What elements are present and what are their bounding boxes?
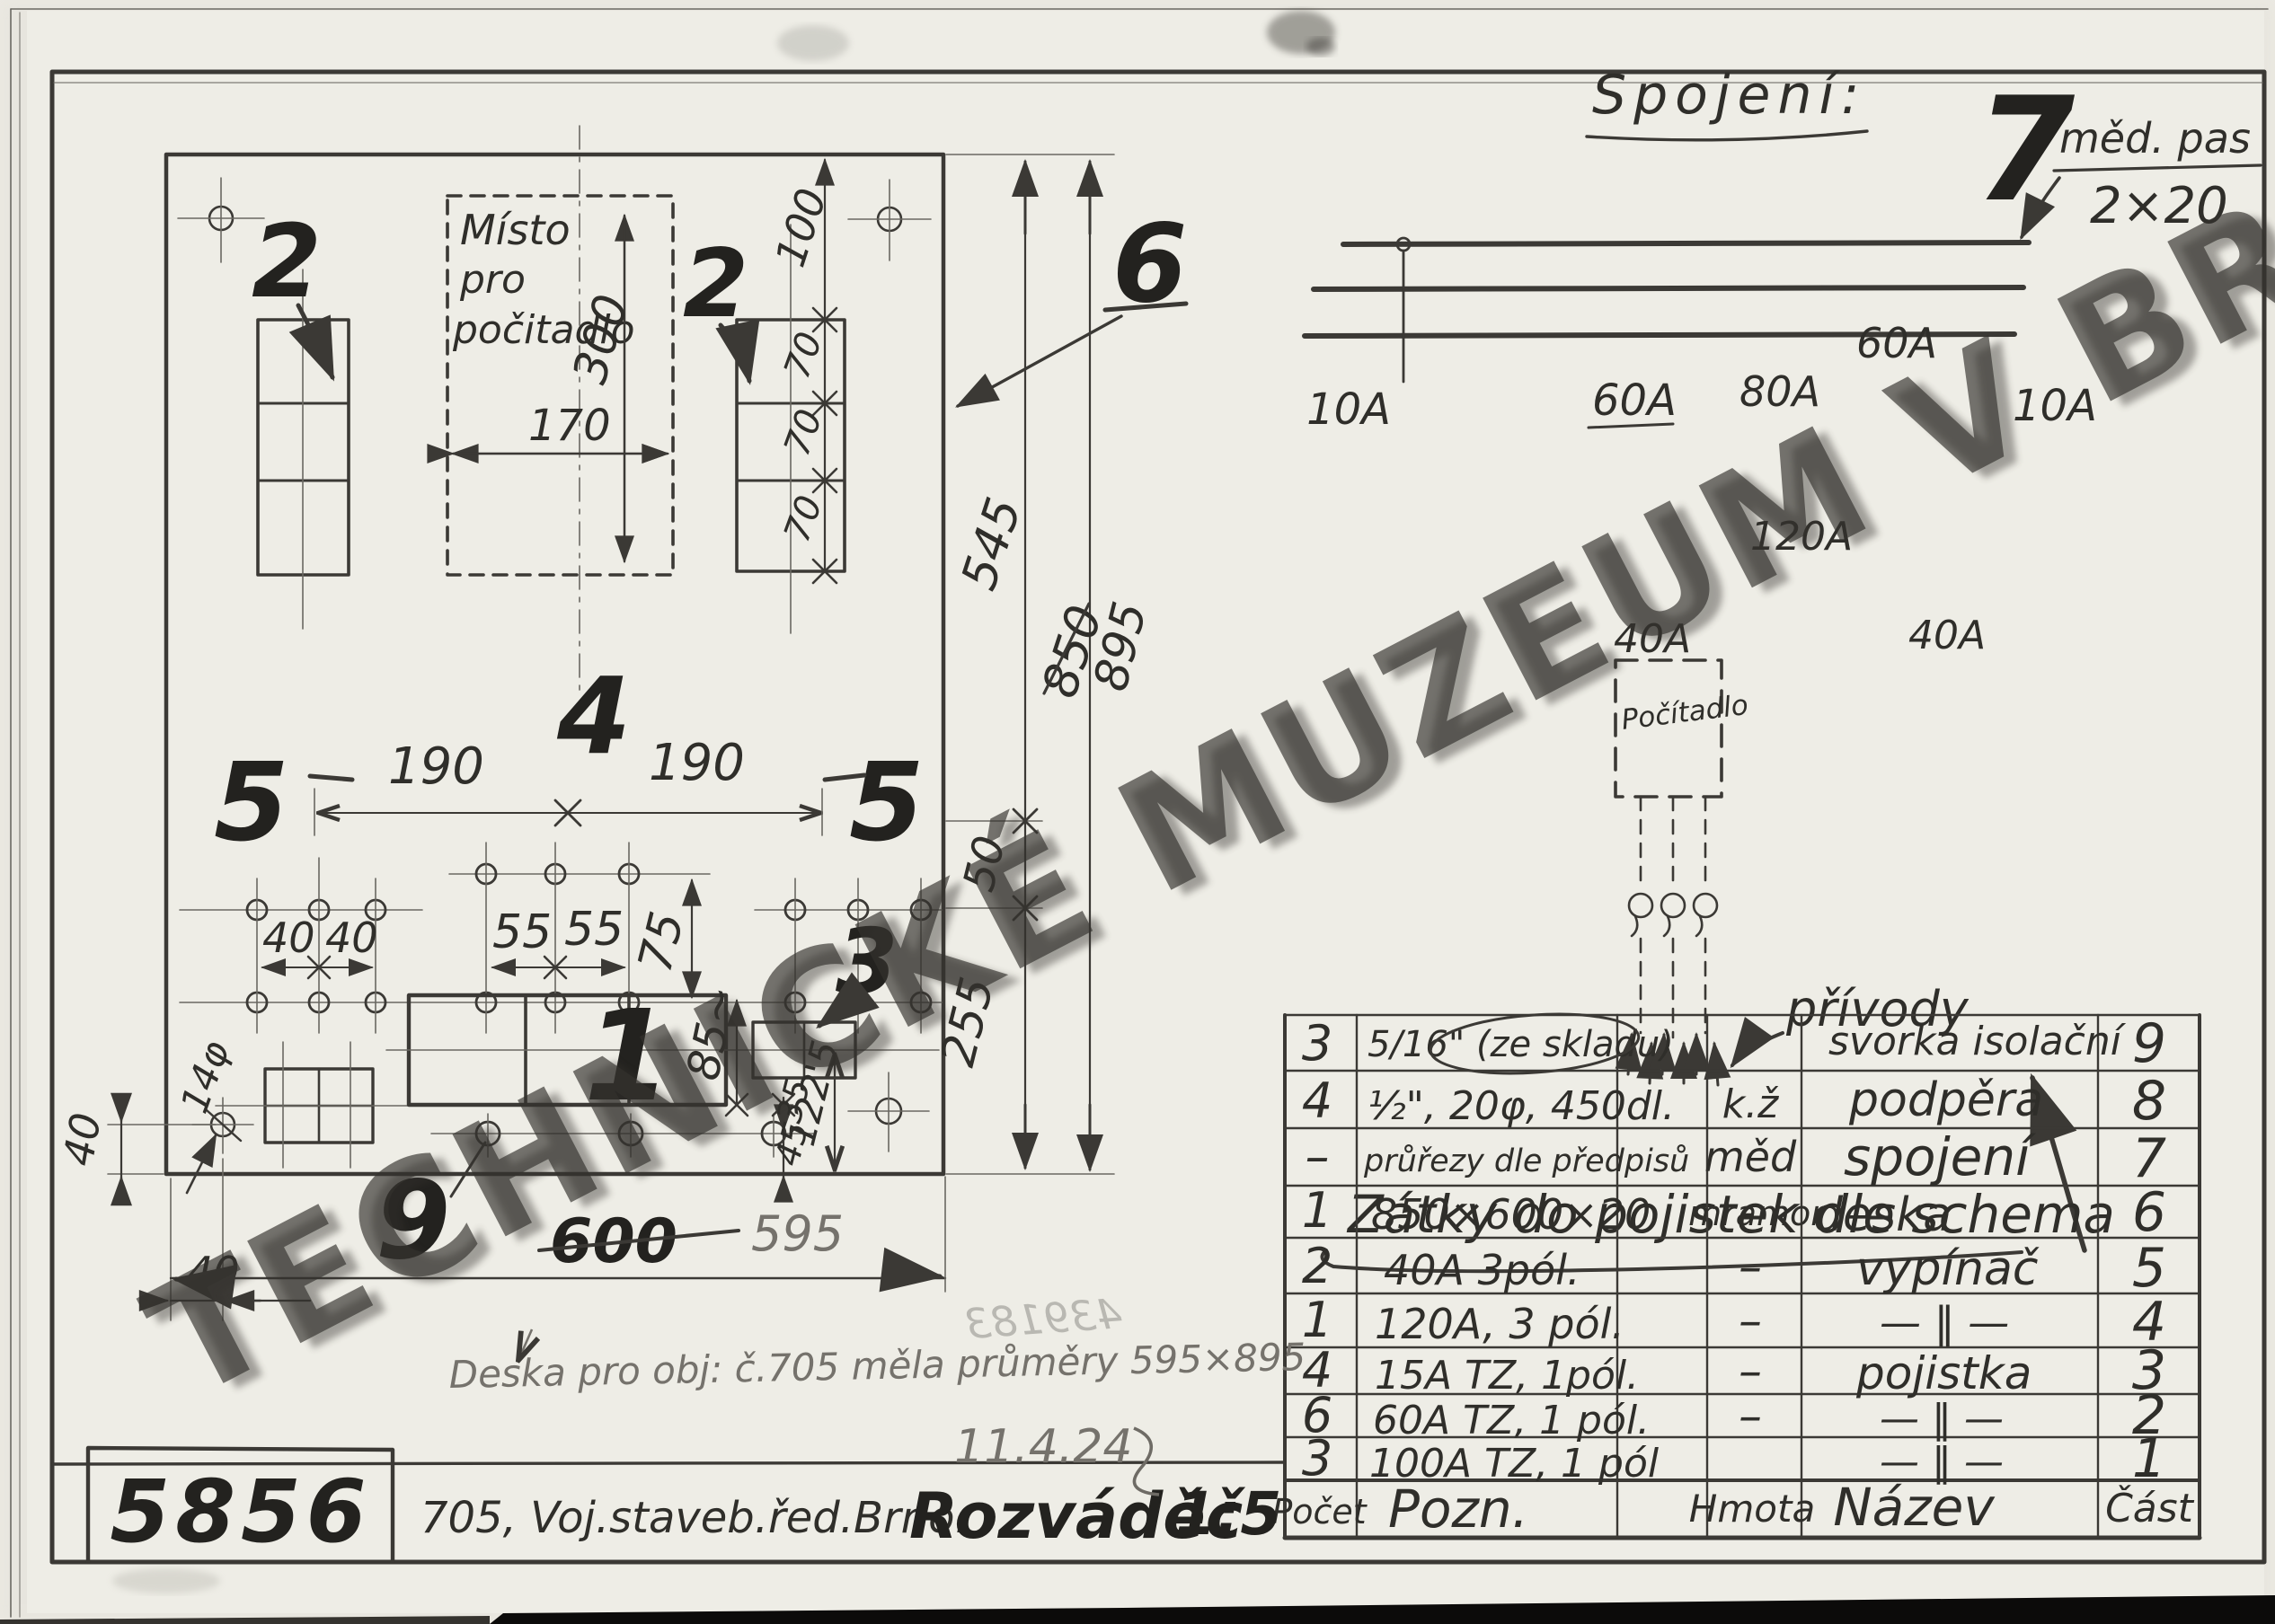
cell-nazev-4: vypínač: [1856, 1242, 2040, 1296]
cell-nazev-0: svorka isolační: [1828, 1019, 2127, 1064]
pos-label-5-right: 5: [849, 741, 925, 866]
cell-nazev-6: pojistka: [1855, 1347, 2032, 1399]
drawing-number: 5856: [110, 1461, 371, 1562]
header-pozn: Pozn.: [1388, 1478, 1528, 1540]
cell-hmota-5: –: [1739, 1294, 1762, 1348]
cell-cast-8: 1: [2132, 1427, 2166, 1490]
pencil-date: 11.4.24: [954, 1420, 1132, 1474]
pos-label-4: 4: [556, 654, 631, 778]
cell-pocet-5: 1: [1302, 1292, 1332, 1348]
table-col-pocet: 3 4 – 1 2 1 4 6 3: [1302, 1015, 1332, 1487]
header-pocet: Počet: [1271, 1492, 1368, 1531]
cell-hmota-3: mramor: [1688, 1194, 1827, 1233]
fuse-label-10a-left: 10A: [1306, 384, 1391, 435]
cell-nazev-2: spojení: [1844, 1126, 2036, 1187]
counter-area-text-2: pro: [459, 257, 526, 303]
counter-area-text-1: Místo: [460, 206, 571, 254]
fuse-label-60a-left: 60A: [1592, 375, 1677, 426]
dim-190a-label: 190: [388, 737, 484, 796]
table-col-cast: 9 8 7 6 5 4 3 2 1: [2132, 1012, 2166, 1490]
dim-40a-label: 40: [262, 913, 315, 962]
dim-170-label: 170: [528, 401, 611, 451]
cell-pozn-5: 120A, 3 pól.: [1375, 1300, 1624, 1348]
dim-55b-label: 55: [564, 903, 624, 957]
cell-nazev-1: podpěra: [1848, 1073, 2043, 1127]
cell-hmota-2: měd: [1704, 1133, 1797, 1181]
pos-label-2-left: 2: [252, 204, 322, 321]
cell-pocet-4: 2: [1302, 1238, 1332, 1294]
switch-label-40a-right: 40A: [1908, 613, 1986, 658]
pos-label-2-right: 2: [683, 229, 748, 339]
dim-55a-label: 55: [492, 905, 552, 959]
scanned-drawing-sheet: 2 Místo pro počitadlo 170 300 2: [0, 0, 2275, 1624]
cell-nazev-5: — ‖ —: [1880, 1298, 2009, 1347]
cell-nazev-3: deska: [1813, 1188, 1952, 1242]
cell-hmota-1: k.ž: [1722, 1081, 1779, 1127]
header-cast: Část: [2105, 1484, 2195, 1531]
cell-nazev-7: — ‖ —: [1880, 1396, 2004, 1442]
cell-cast-0: 9: [2132, 1012, 2166, 1075]
cell-pocet-3: 1: [1302, 1182, 1332, 1239]
cell-pocet-8: 3: [1302, 1430, 1332, 1487]
cell-hmota-4: –: [1739, 1240, 1762, 1294]
cell-pozn-4: 40A 3pól.: [1384, 1246, 1580, 1294]
dim-190b-label: 190: [649, 734, 745, 792]
dim-40b-label: 40: [325, 913, 378, 962]
dim-40left-label: 40: [54, 1109, 111, 1169]
cell-pozn-1: ½", 20φ, 450dl.: [1368, 1083, 1675, 1129]
cell-hmota-7: –: [1739, 1390, 1762, 1443]
dim-595-label: 595: [751, 1205, 844, 1262]
cell-pocet-2: –: [1306, 1128, 1330, 1185]
cell-pocet-0: 3: [1302, 1015, 1332, 1072]
org-name: 705, Voj.staveb.řed.Brno.: [420, 1493, 969, 1543]
cell-pozn-0: 5/16" (ze skladu): [1368, 1024, 1674, 1065]
cell-cast-1: 8: [2132, 1070, 2166, 1133]
busbar-note-1: měd. pas: [2059, 114, 2251, 163]
cell-pozn-3: 850×600×20: [1371, 1190, 1651, 1239]
drawing-canvas: 2 Místo pro počitadlo 170 300 2: [0, 0, 2275, 1624]
cell-pozn-6: 15A TZ, 1pól.: [1375, 1353, 1639, 1399]
header-nazev: Název: [1833, 1477, 1996, 1538]
cell-pocet-1: 4: [1302, 1072, 1332, 1129]
pos-label-5-left: 5: [214, 741, 289, 866]
sheet-scale: 1:5: [1175, 1479, 1281, 1549]
schematic-heading: Spojení:: [1592, 64, 1866, 127]
cell-pozn-2: průřezy dle předpisů: [1363, 1143, 1689, 1179]
cell-pozn-7: 60A TZ, 1 pól.: [1373, 1398, 1650, 1443]
cell-cast-3: 6: [2132, 1181, 2166, 1244]
header-hmota: Hmota: [1689, 1487, 1815, 1531]
